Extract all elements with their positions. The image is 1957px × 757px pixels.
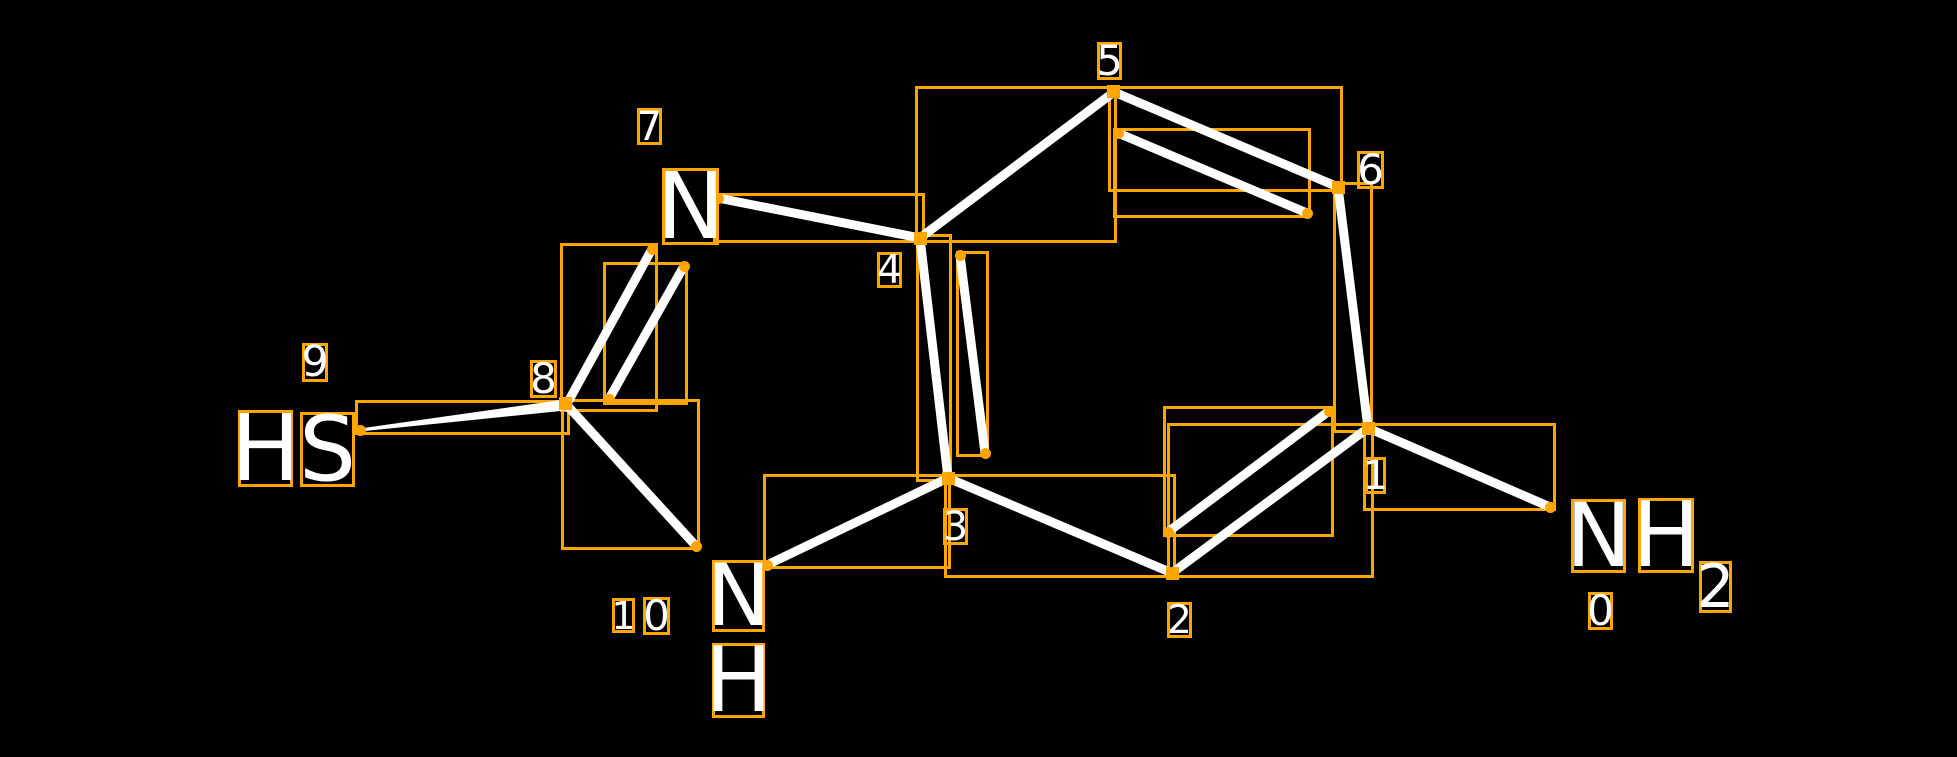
bond-4-5 — [920, 92, 1114, 238]
index-label-7: 7 — [637, 108, 662, 145]
index-label-1: 1 — [1365, 457, 1386, 494]
index-label-1-text: 1 — [1363, 456, 1388, 496]
bond-8-10 — [565, 403, 696, 546]
bond-3-4-main — [920, 238, 948, 478]
bond-endpoint-dot-18 — [1333, 182, 1344, 193]
index-label-10-tens-text: 1 — [611, 597, 635, 635]
atom-0-glyph-N-text: N — [1566, 492, 1632, 580]
index-label-6: 6 — [1357, 151, 1384, 189]
bond-endpoint-dot-1 — [560, 399, 571, 410]
bond-endpoint-dot-19 — [1363, 423, 1374, 434]
atom-7-glyph-N-text: N — [656, 161, 725, 253]
molecule-annotation-canvas: HSNNHNH2987104532610 — [0, 0, 1957, 757]
atom-10-glyph-H: H — [712, 643, 765, 718]
bond-endpoint-dot-13 — [1113, 128, 1124, 139]
bond-endpoint-dot-15 — [1163, 527, 1174, 538]
index-label-8-text: 8 — [530, 358, 557, 400]
atom-9-glyph-H-text: H — [231, 403, 300, 495]
index-label-6-text: 6 — [1357, 149, 1384, 191]
index-label-5: 5 — [1097, 42, 1122, 80]
bond-7-4 — [718, 198, 920, 238]
bond-2-3 — [948, 478, 1172, 573]
index-label-3: 3 — [943, 508, 968, 545]
bond-endpoint-dot-11 — [980, 448, 991, 459]
bond-endpoint-dot-8 — [915, 233, 926, 244]
atom-0-glyph-H-text: H — [1632, 491, 1700, 581]
bond-endpoint-dot-9 — [943, 473, 954, 484]
atom-9-glyph-S: S — [300, 412, 355, 487]
atom-7-glyph-N: N — [662, 168, 719, 245]
atom-10-glyph-N-text: N — [706, 553, 770, 639]
index-label-7-text: 7 — [637, 107, 662, 147]
bond-3-4-inner — [960, 255, 985, 453]
bond-5-6-main — [1114, 92, 1338, 187]
index-label-10-ones: 0 — [643, 597, 670, 635]
atom-9-glyph-H: H — [238, 410, 293, 487]
bond-endpoint-dot-12 — [1109, 87, 1120, 98]
bond-endpoint-dot-14 — [1167, 568, 1178, 579]
index-label-10-tens: 1 — [612, 598, 635, 633]
index-label-3-text: 3 — [943, 507, 968, 547]
bond-endpoint-dot-20 — [1545, 502, 1556, 513]
atom-10-glyph-H-text: H — [705, 636, 773, 726]
index-label-10-ones-text: 0 — [643, 595, 670, 637]
bond-endpoint-dot-10 — [955, 250, 966, 261]
index-label-0: 0 — [1588, 592, 1613, 630]
atom-0-glyph-sub2-text: 2 — [1696, 557, 1734, 617]
index-label-9-text: 9 — [301, 341, 328, 384]
bond-endpoint-dot-0 — [355, 425, 366, 436]
index-label-2: 2 — [1167, 602, 1192, 638]
index-label-4: 4 — [877, 252, 902, 288]
index-label-2-text: 2 — [1167, 601, 1192, 640]
atom-0-glyph-H: H — [1638, 498, 1694, 573]
index-label-9: 9 — [302, 343, 328, 382]
bond-layer — [0, 0, 1957, 757]
bond-1-0 — [1368, 428, 1550, 507]
index-label-0-text: 0 — [1587, 590, 1614, 632]
index-label-4-text: 4 — [877, 251, 902, 290]
bond-8-7-inner — [609, 266, 684, 399]
bond-5-6-inner — [1118, 133, 1307, 213]
bond-8-7-main — [568, 249, 652, 402]
bond-endpoint-dot-6 — [691, 541, 702, 552]
bond-endpoint-dot-17 — [1324, 406, 1335, 417]
index-label-5-text: 5 — [1096, 40, 1123, 82]
atom-9-glyph-S-text: S — [299, 405, 356, 495]
bond-endpoint-dot-16 — [1302, 208, 1313, 219]
atom-10-glyph-N: N — [712, 560, 765, 632]
bond-endpoint-dot-4 — [679, 261, 690, 272]
bond-9-8 — [360, 400, 566, 432]
bond-6-1 — [1338, 187, 1368, 428]
atom-0-glyph-N: N — [1571, 499, 1626, 573]
atom-0-glyph-sub2: 2 — [1699, 561, 1732, 613]
bond-endpoint-dot-2 — [604, 394, 615, 405]
bond-3-10 — [767, 478, 948, 565]
index-label-8: 8 — [530, 360, 557, 398]
